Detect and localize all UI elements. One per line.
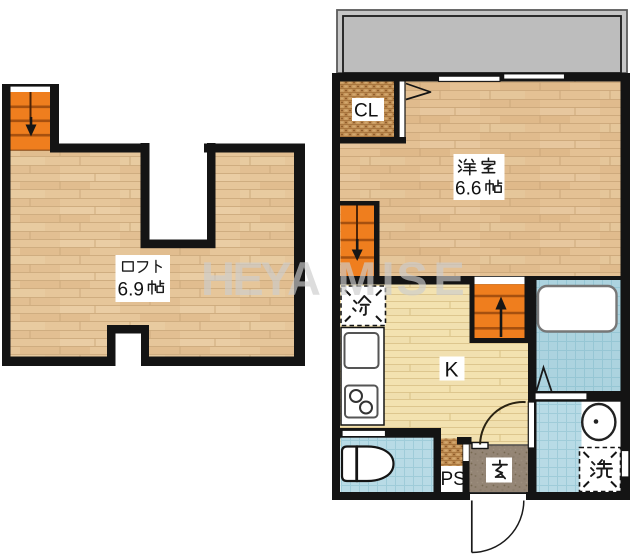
svg-text:6.9: 6.9 [118, 280, 144, 301]
svg-text:PS: PS [441, 469, 466, 490]
svg-text:K: K [445, 359, 459, 382]
svg-text:E: E [433, 252, 464, 305]
svg-text:A: A [287, 252, 321, 305]
svg-text:S: S [396, 252, 427, 305]
svg-text:E: E [232, 252, 263, 305]
svg-text:M: M [337, 252, 376, 305]
svg-text:H: H [201, 252, 235, 305]
svg-text:CL: CL [354, 101, 378, 122]
svg-text:I: I [381, 252, 394, 305]
svg-text:6.6: 6.6 [455, 179, 481, 200]
